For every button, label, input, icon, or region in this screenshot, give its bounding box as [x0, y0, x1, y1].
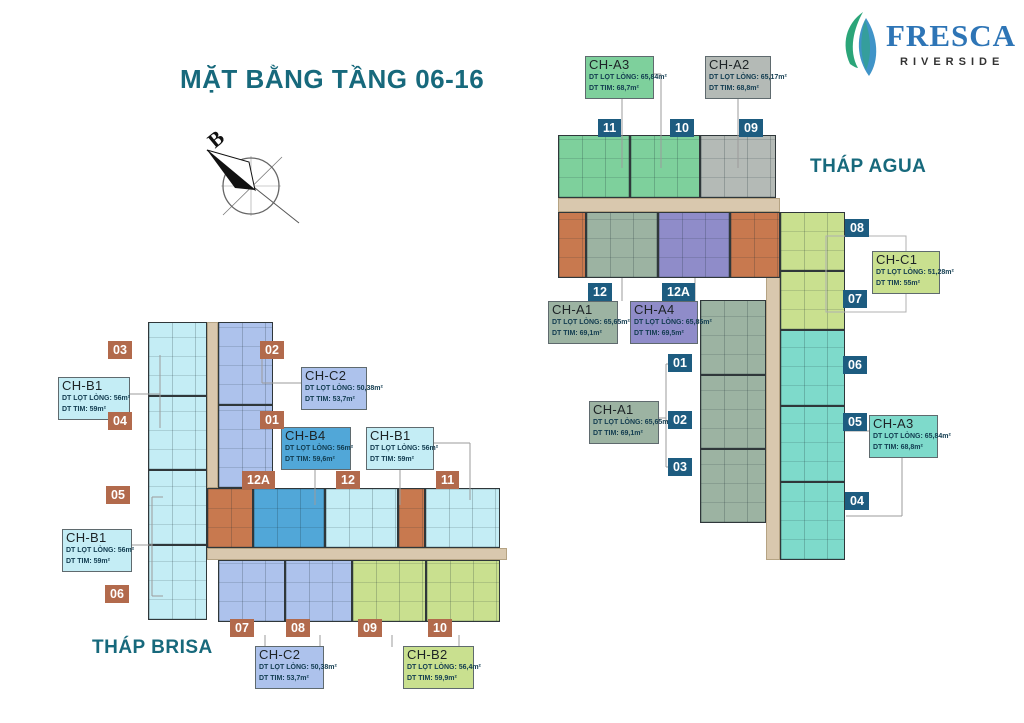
apartment-code: CH-B2	[407, 648, 470, 663]
page-title: MẶT BẰNG TẦNG 06-16	[180, 64, 484, 95]
badge-agua-03: 03	[668, 458, 692, 476]
unit-brisa-12A	[253, 488, 325, 548]
gross-area: DT TIM: 69,1m²	[593, 429, 655, 440]
apartment-code: CH-A1	[593, 403, 655, 418]
net-area: DT LỌT LÒNG: 65,17m²	[709, 73, 767, 84]
net-area: DT LỌT LÒNG: 65,84m²	[873, 432, 934, 443]
floorplan-canvas: MẶT BẰNG TẦNG 06-16 B FRESCA RIVERSIDE T…	[0, 0, 1024, 723]
badge-agua-11: 11	[598, 119, 621, 137]
unit-brisa-08	[285, 560, 352, 622]
apartment-code: CH-C2	[259, 648, 320, 663]
badge-agua-08: 08	[845, 219, 869, 237]
gross-area: DT TIM: 68,7m²	[589, 84, 650, 95]
apartment-code: CH-C2	[305, 369, 363, 384]
corridor-agua-top	[558, 198, 780, 212]
net-area: DT LỌT LÒNG: 56m²	[285, 444, 347, 455]
unit-brisa-05	[148, 470, 207, 545]
leaf-icon	[836, 10, 884, 80]
gross-area: DT TIM: 53,7m²	[305, 395, 363, 406]
unit-agua-06	[780, 330, 845, 406]
tower-label-brisa: THÁP BRISA	[92, 637, 213, 659]
gross-area: DT TIM: 68,8m²	[709, 84, 767, 95]
brand-logo: FRESCA RIVERSIDE	[836, 10, 1021, 82]
tower-label-agua: THÁP AGUA	[810, 156, 926, 178]
badge-brisa-03: 03	[108, 341, 132, 359]
unit-brisa-04	[148, 396, 207, 470]
unit-agua-12A	[658, 212, 730, 278]
stair-core-agua-left	[558, 212, 586, 278]
label-box-cha2: CH-A2 DT LỌT LÒNG: 65,17m² DT TIM: 68,8m…	[705, 56, 771, 99]
net-area: DT LỌT LÒNG: 50,38m²	[259, 663, 320, 674]
label-box-cha4: CH-A4 DT LỌT LÒNG: 65,85m² DT TIM: 69,5m…	[630, 301, 698, 344]
badge-brisa-12: 12	[336, 471, 360, 489]
badge-brisa-05: 05	[106, 486, 130, 504]
badge-brisa-04: 04	[108, 412, 132, 430]
badge-agua-02: 02	[668, 411, 692, 429]
label-box-chc2-bot: CH-C2 DT LỌT LÒNG: 50,38m² DT TIM: 53,7m…	[255, 646, 324, 689]
label-box-cha3-right: CH-A3 DT LỌT LÒNG: 65,84m² DT TIM: 68,8m…	[869, 415, 938, 458]
badge-agua-05: 05	[843, 413, 867, 431]
badge-agua-01: 01	[668, 354, 692, 372]
badge-brisa-08: 08	[286, 619, 310, 637]
gross-area: DT TIM: 59,9m²	[407, 674, 470, 685]
label-box-chb2: CH-B2 DT LỌT LÒNG: 56,4m² DT TIM: 59,9m²	[403, 646, 474, 689]
compass-north-letter: B	[203, 126, 229, 153]
badge-brisa-02: 02	[260, 341, 284, 359]
gross-area: DT TIM: 69,5m²	[634, 329, 694, 340]
net-area: DT LỌT LÒNG: 51,28m²	[876, 268, 936, 279]
unit-agua-02	[700, 375, 766, 449]
badge-agua-12: 12	[588, 283, 612, 301]
gross-area: DT TIM: 53,7m²	[259, 674, 320, 685]
net-area: DT LỌT LÒNG: 56,4m²	[407, 663, 470, 674]
net-area: DT LỌT LÒNG: 65,84m²	[589, 73, 650, 84]
apartment-code: CH-A3	[873, 417, 934, 432]
apartment-code: CH-B1	[62, 379, 126, 394]
badge-brisa-01: 01	[260, 411, 284, 429]
badge-brisa-12A: 12A	[242, 471, 275, 489]
badge-agua-09: 09	[739, 119, 763, 137]
gross-area: DT TIM: 68,8m²	[873, 443, 934, 454]
badge-brisa-07: 07	[230, 619, 254, 637]
unit-agua-04	[780, 482, 845, 560]
net-area: DT LỌT LÒNG: 65,65m²	[593, 418, 655, 429]
apartment-code: CH-B4	[285, 429, 347, 444]
gross-area: DT TIM: 59m²	[370, 455, 430, 466]
gross-area: DT TIM: 59m²	[66, 557, 128, 568]
apartment-code: CH-A4	[634, 303, 694, 318]
unit-agua-08	[780, 212, 845, 271]
stair-core-brisa-mid	[398, 488, 425, 548]
net-area: DT LỌT LÒNG: 56m²	[370, 444, 430, 455]
net-area: DT LỌT LÒNG: 56m²	[66, 546, 128, 557]
unit-agua-11	[558, 135, 630, 198]
label-box-cha3-top: CH-A3 DT LỌT LÒNG: 65,84m² DT TIM: 68,7m…	[585, 56, 654, 99]
label-box-cha1-top: CH-A1 DT LỌT LÒNG: 65,65m² DT TIM: 69,1m…	[548, 301, 618, 344]
unit-brisa-11	[425, 488, 500, 548]
apartment-code: CH-B1	[370, 429, 430, 444]
gross-area: DT TIM: 59,6m²	[285, 455, 347, 466]
unit-brisa-03	[148, 322, 207, 396]
unit-agua-03	[700, 449, 766, 523]
stair-core-agua-right	[730, 212, 780, 278]
unit-brisa-02	[218, 322, 273, 405]
unit-brisa-09	[352, 560, 426, 622]
unit-brisa-12	[325, 488, 398, 548]
unit-agua-07	[780, 271, 845, 330]
gross-area: DT TIM: 55m²	[876, 279, 936, 290]
net-area: DT LỌT LÒNG: 50,38m²	[305, 384, 363, 395]
unit-agua-10	[630, 135, 700, 198]
badge-agua-12A: 12A	[662, 283, 695, 301]
unit-agua-12	[586, 212, 658, 278]
apartment-code: CH-B1	[66, 531, 128, 546]
label-box-chc2-top: CH-C2 DT LỌT LÒNG: 50,38m² DT TIM: 53,7m…	[301, 367, 367, 410]
unit-brisa-06	[148, 545, 207, 620]
net-area: DT LỌT LÒNG: 56m²	[62, 394, 126, 405]
label-box-chb1-low: CH-B1 DT LỌT LÒNG: 56m² DT TIM: 59m²	[62, 529, 132, 572]
label-box-cha1-mid: CH-A1 DT LỌT LÒNG: 65,65m² DT TIM: 69,1m…	[589, 401, 659, 444]
unit-agua-05	[780, 406, 845, 482]
apartment-code: CH-A2	[709, 58, 767, 73]
apartment-code: CH-C1	[876, 253, 936, 268]
net-area: DT LỌT LÒNG: 65,65m²	[552, 318, 614, 329]
corridor-brisa-bottom	[207, 548, 507, 560]
badge-agua-10: 10	[670, 119, 694, 137]
brand-name: FRESCA	[886, 18, 1016, 54]
net-area: DT LỌT LÒNG: 65,85m²	[634, 318, 694, 329]
brand-subtitle: RIVERSIDE	[900, 56, 1004, 68]
badge-brisa-11: 11	[436, 471, 459, 489]
unit-brisa-07	[218, 560, 285, 622]
label-box-chb4: CH-B4 DT LỌT LÒNG: 56m² DT TIM: 59,6m²	[281, 427, 351, 470]
badge-agua-07: 07	[843, 290, 867, 308]
corridor-brisa-vertical	[207, 322, 218, 488]
badge-brisa-10: 10	[428, 619, 452, 637]
apartment-code: CH-A1	[552, 303, 614, 318]
unit-brisa-10	[426, 560, 500, 622]
badge-agua-04: 04	[845, 492, 869, 510]
badge-brisa-09: 09	[358, 619, 382, 637]
apartment-code: CH-A3	[589, 58, 650, 73]
unit-agua-09	[700, 135, 776, 198]
gross-area: DT TIM: 69,1m²	[552, 329, 614, 340]
badge-brisa-06: 06	[105, 585, 129, 603]
compass-icon: B	[193, 126, 308, 246]
stair-core-brisa-corner	[207, 488, 253, 548]
unit-agua-01	[700, 300, 766, 375]
label-box-chb1-mid: CH-B1 DT LỌT LÒNG: 56m² DT TIM: 59m²	[366, 427, 434, 470]
label-box-chc1: CH-C1 DT LỌT LÒNG: 51,28m² DT TIM: 55m²	[872, 251, 940, 294]
badge-agua-06: 06	[843, 356, 867, 374]
